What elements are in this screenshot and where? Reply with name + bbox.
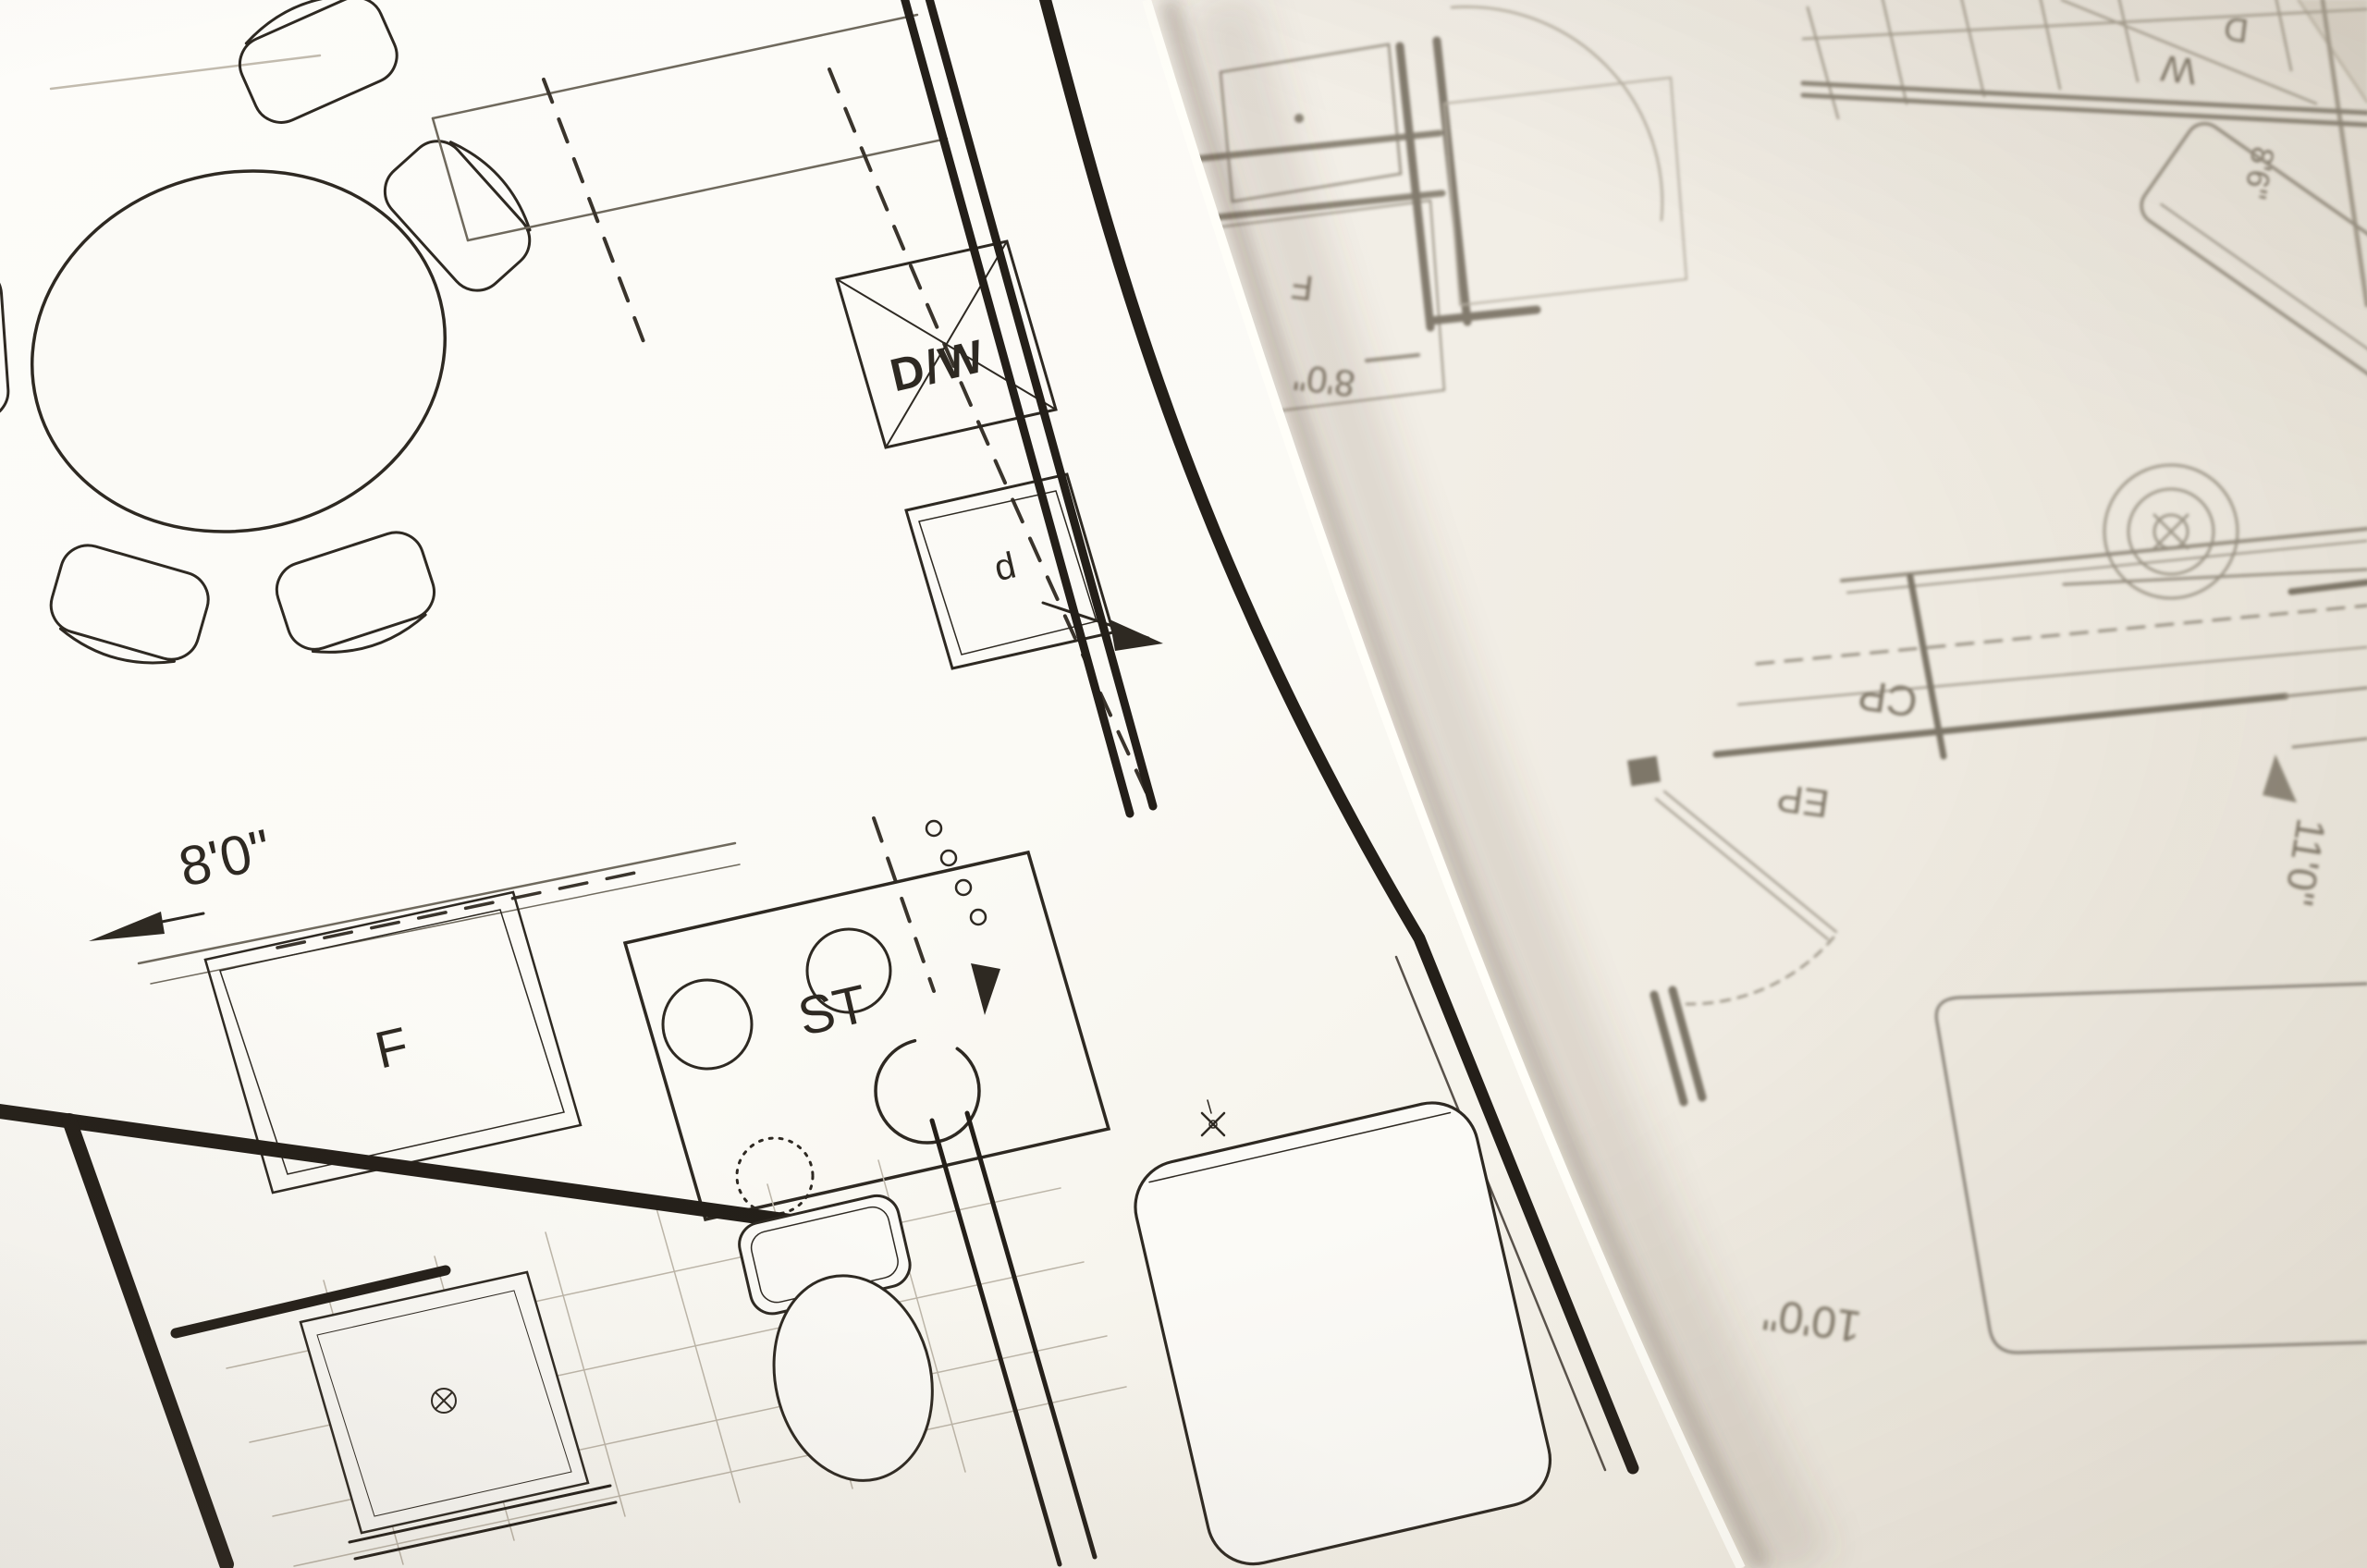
underlying-sheet-corner (2299, 0, 2367, 102)
laundry-tile-grid (1803, 0, 2367, 305)
blueprint-drawing: W D 8'6" F 8'0" (0, 0, 2367, 1568)
blueprint-photo: W D 8'6" F 8'0" (0, 0, 2367, 1568)
room-dim-label: 10'0" (1760, 1289, 1865, 1351)
dim-arrow-up (2263, 754, 2297, 802)
dryer-label: D (2222, 9, 2250, 50)
door-arc (1686, 937, 1834, 1004)
panel-label: EP (1774, 776, 1832, 826)
door-jamb (1627, 756, 1661, 787)
closet-walls (1716, 529, 2367, 756)
rug-outline (1936, 984, 2367, 1353)
door-arc-upper (1452, 6, 1662, 220)
laundry-dim-label: 8'6" (2237, 144, 2280, 202)
washer-label: W (2159, 47, 2199, 92)
closet-dim-label: 11'0" (2275, 815, 2334, 909)
fridge2-dim-arrow (1367, 355, 1418, 361)
closet-label: CP (1856, 671, 1921, 727)
